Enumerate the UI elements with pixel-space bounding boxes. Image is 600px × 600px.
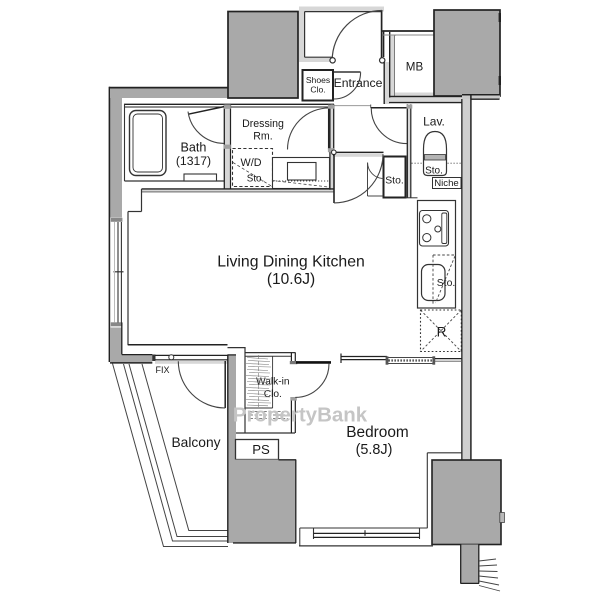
svg-text:Sto.: Sto. <box>437 278 455 289</box>
svg-text:MB: MB <box>406 61 424 74</box>
svg-text:(1317): (1317) <box>176 154 211 168</box>
svg-text:(10.6J): (10.6J) <box>267 271 315 288</box>
svg-text:Sto.: Sto. <box>247 174 264 185</box>
svg-text:Lav.: Lav. <box>423 115 445 129</box>
svg-text:PS: PS <box>252 442 270 457</box>
svg-text:Bath: Bath <box>181 141 207 155</box>
svg-text:Dressing: Dressing <box>242 118 284 130</box>
svg-text:Sto.: Sto. <box>425 166 443 177</box>
svg-text:Living Dining Kitchen: Living Dining Kitchen <box>217 254 365 271</box>
svg-text:(5.8J): (5.8J) <box>356 442 393 458</box>
svg-text:Rm.: Rm. <box>253 131 272 143</box>
svg-text:Entrance: Entrance <box>334 76 383 90</box>
svg-text:Balcony: Balcony <box>171 435 220 450</box>
svg-text:Clo.: Clo. <box>310 85 325 95</box>
svg-text:W/D: W/D <box>241 157 262 169</box>
svg-text:Sto.: Sto. <box>385 176 403 187</box>
svg-text:R: R <box>437 325 447 340</box>
svg-text:Niche: Niche <box>434 178 459 189</box>
svg-text:Shoes: Shoes <box>306 75 330 85</box>
svg-text:FIX: FIX <box>155 365 169 375</box>
svg-text:Bedroom: Bedroom <box>346 424 408 441</box>
svg-text:PropertyBank: PropertyBank <box>233 404 368 427</box>
